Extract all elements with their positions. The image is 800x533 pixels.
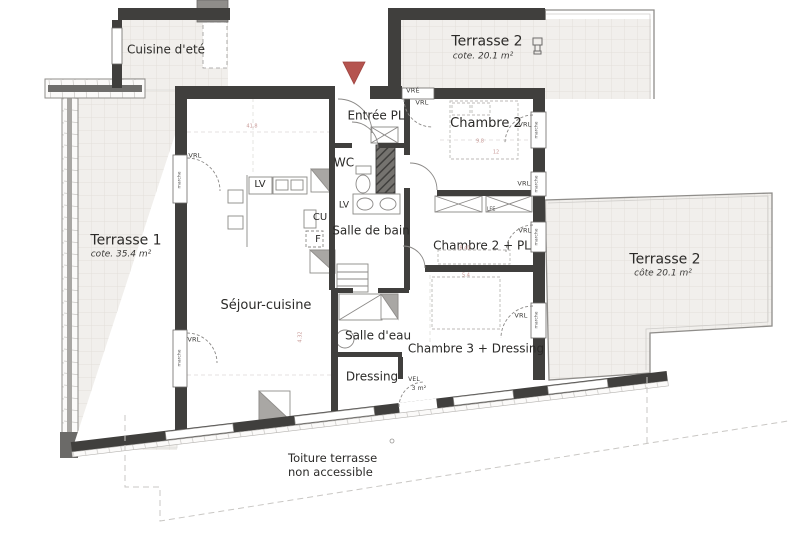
mark-vrl-sejour-top: VRL — [188, 153, 201, 160]
mark-marche-4: marche — [536, 176, 541, 193]
room-label-wc: WC — [334, 157, 354, 170]
fixture-label-f: F — [315, 235, 321, 246]
room-label-chambre2: Chambre 2 — [450, 117, 522, 131]
area-terrasse2-top: cote. 20.1 m² — [453, 52, 514, 61]
area-terrasse1: cote. 35.4 m² — [91, 250, 152, 259]
room-label-sejour: Séjour-cuisine — [221, 299, 312, 313]
room-label-salle-eau: Salle d'eau — [345, 330, 411, 343]
labels-layer: Cuisine d'eté Terrasse 2 cote. 20.1 m² T… — [0, 0, 800, 533]
mark-marche-2: marche — [179, 350, 184, 367]
area-terrasse2-right: côte 20.1 m² — [634, 269, 692, 278]
fixture-label-lv-bath: LV — [339, 201, 349, 210]
roof-label-line1: Toiture terrasse — [288, 452, 377, 464]
mark-vel-area: 3 m² — [412, 386, 427, 392]
dim-ch2-b: 12 — [493, 150, 499, 155]
dim-sdb: 8.41 — [459, 246, 470, 251]
room-label-terrasse2-right: Terrasse 2 — [629, 253, 700, 268]
room-label-dressing: Dressing — [346, 371, 398, 384]
room-label-salle-de-bain: Salle de bain — [332, 225, 410, 238]
room-label-terrasse1: Terrasse 1 — [90, 234, 161, 249]
room-label-cuisine: Cuisine d'eté — [127, 44, 205, 57]
mark-vrl-ch2-upper: VRL — [518, 122, 531, 129]
room-label-chambre3: Chambre 3 + Dressing — [408, 343, 544, 356]
mark-marche-1: marche — [179, 172, 184, 189]
mark-marche-3: marche — [536, 122, 541, 139]
room-label-terrasse2-top: Terrasse 2 — [451, 35, 522, 50]
fixture-label-lv-kitchen: LV — [254, 180, 265, 191]
mark-vre-entrance: VRÉ — [406, 88, 420, 95]
dim-ch2-a: 9.8 — [476, 139, 484, 144]
mark-marche-6: marche — [536, 312, 541, 329]
roof-label-line2: non accessible — [288, 466, 373, 478]
fixture-label-cu: CU — [313, 213, 327, 224]
mark-vrl-ch2pl: VRL — [518, 228, 531, 235]
dim-sejour-h: 4.32 — [298, 331, 303, 342]
floorplan-page: Cuisine d'eté Terrasse 2 cote. 20.1 m² T… — [0, 0, 800, 533]
mark-vrl-ch2-lower: VRL — [517, 181, 530, 188]
mark-marche-5: marche — [536, 229, 541, 246]
room-label-entree: Entrée PL — [347, 110, 404, 123]
mark-vel: VEL — [408, 377, 420, 383]
room-label-chambre2-pl: Chambre 2 + PL — [433, 240, 531, 253]
mark-vrl-ch3: VRL — [514, 313, 527, 320]
dim-sde: 5.4 — [462, 273, 470, 278]
dim-sejour-w: 41.8 — [246, 124, 257, 129]
mark-vrl-sejour-low: VRL — [187, 337, 200, 344]
mark-vrl-entrance: VRL — [415, 100, 428, 107]
fixture-label-lfe: LFE — [487, 207, 496, 212]
